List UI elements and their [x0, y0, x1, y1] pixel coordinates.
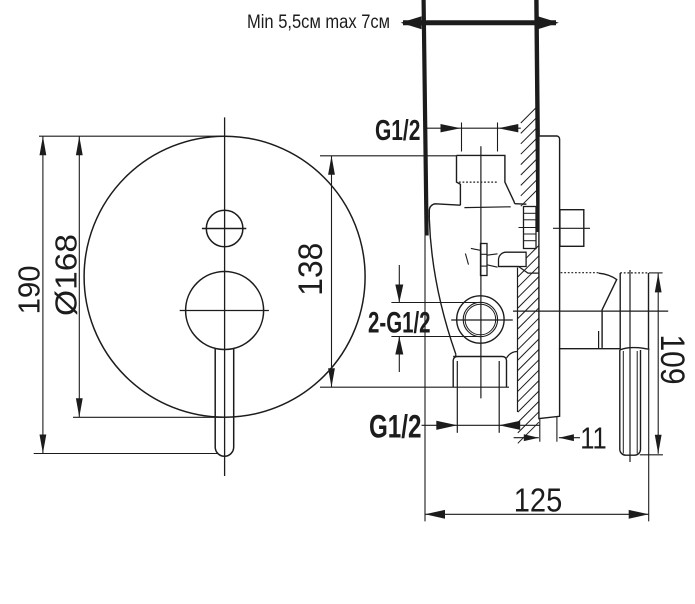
svg-text:11: 11: [580, 421, 607, 456]
svg-text:Min 5,5см max 7см: Min 5,5см max 7см: [247, 11, 390, 33]
svg-text:125: 125: [514, 481, 563, 518]
svg-text:Ø168: Ø168: [48, 234, 83, 316]
svg-text:109: 109: [653, 335, 691, 385]
svg-text:G1/2: G1/2: [375, 115, 421, 147]
svg-text:2-G1/2: 2-G1/2: [368, 306, 431, 339]
svg-text:138: 138: [292, 243, 330, 296]
svg-text:190: 190: [12, 265, 47, 314]
svg-text:G1/2: G1/2: [369, 408, 422, 444]
